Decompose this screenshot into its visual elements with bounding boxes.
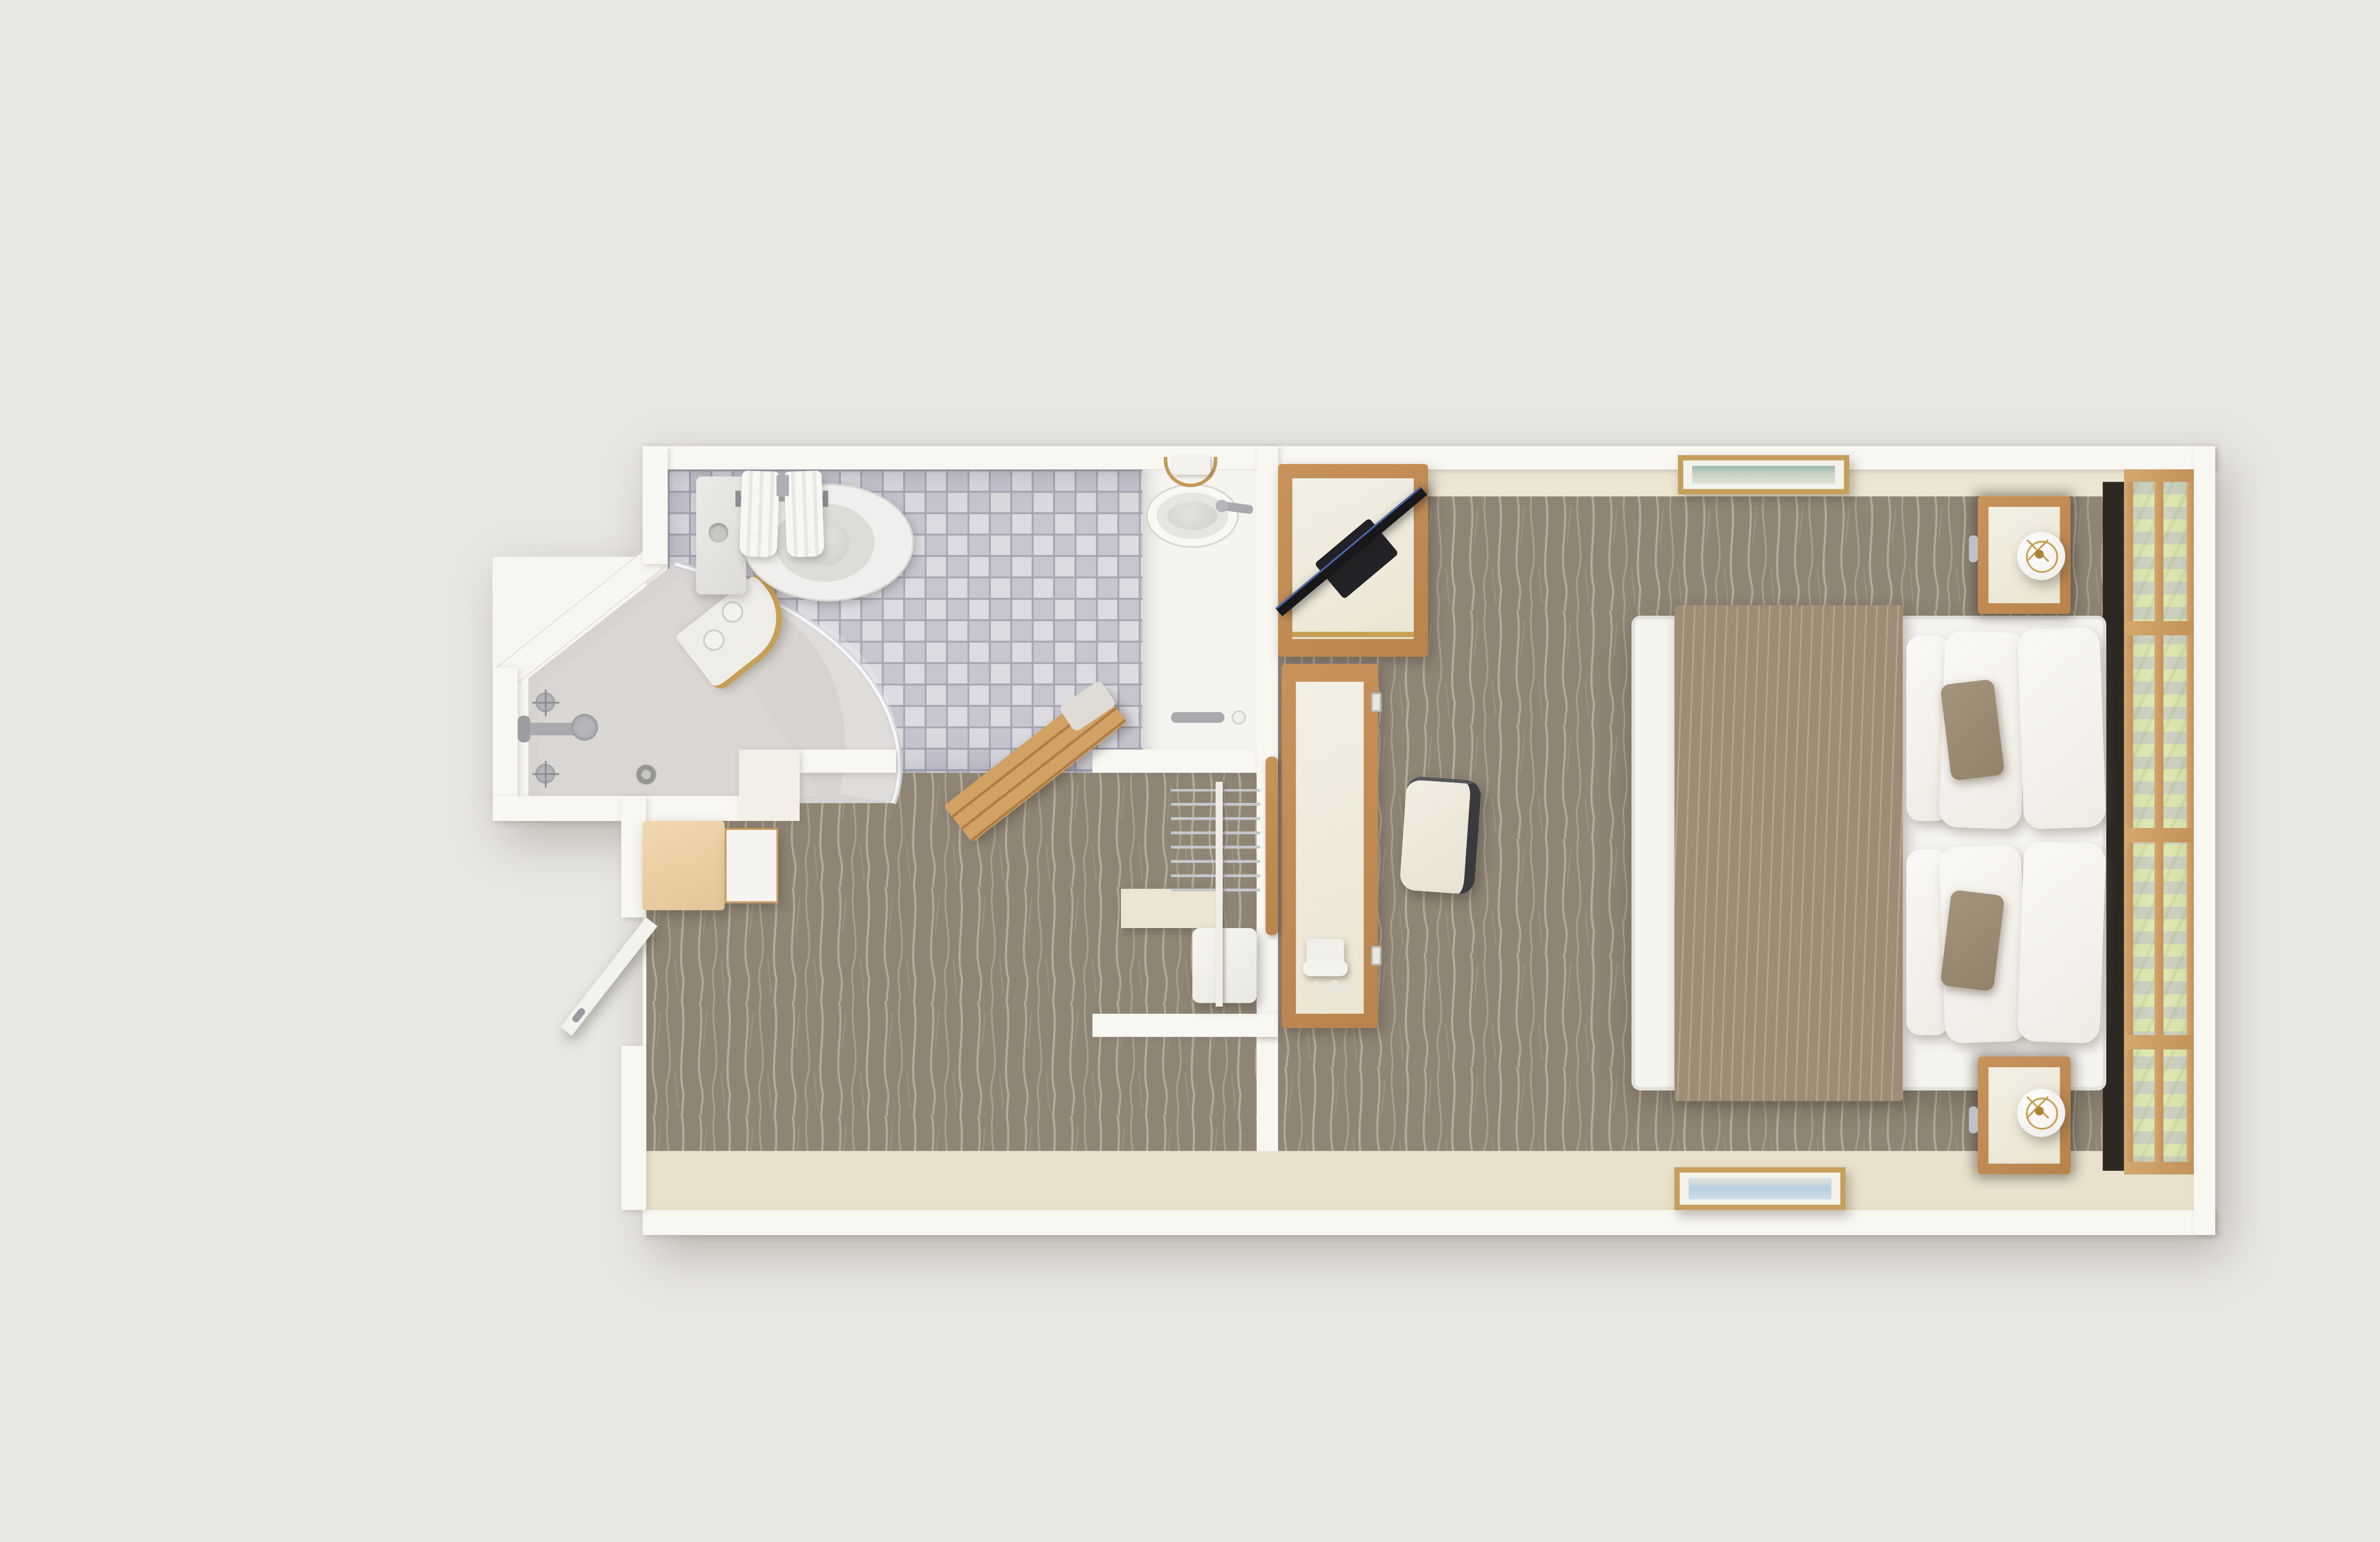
hall-cabinet-wood-top xyxy=(643,821,725,910)
sink-basin-bowl xyxy=(1168,502,1218,530)
hand-towel-on-ring xyxy=(1173,455,1210,474)
closet-rod xyxy=(1216,782,1223,1007)
table-lamp xyxy=(2017,532,2065,580)
wall-bathroom-south-west xyxy=(800,750,896,773)
shower-valve-cold xyxy=(535,764,555,783)
shower-spout-flange xyxy=(518,716,530,742)
wall-doorway-stub xyxy=(739,750,800,821)
wall-bumpout-left xyxy=(493,668,518,803)
desk-chair xyxy=(1399,776,1482,895)
bath-towel xyxy=(784,471,824,558)
wall-top xyxy=(643,446,2215,470)
light-switch xyxy=(1371,692,1382,712)
towel-bar-post xyxy=(823,491,828,507)
wall-bathroom-south-east xyxy=(1092,750,1278,773)
bed-runner xyxy=(1675,605,1903,1101)
window-frame-rail xyxy=(2124,469,2194,482)
table-lamp xyxy=(2017,1089,2065,1137)
towel-bar-post xyxy=(735,491,741,507)
closet-storage-cube xyxy=(1192,928,1257,1003)
nightstand-drawer-handle xyxy=(1969,1107,1978,1133)
artwork-top-canvas xyxy=(1692,466,1835,484)
nightstand-drawer-handle xyxy=(1969,535,1978,562)
sink-faucet-base xyxy=(1216,500,1228,512)
artwork-top-wall xyxy=(1678,455,1849,494)
toiletry-bottle xyxy=(699,625,729,655)
floor-plan-stage xyxy=(0,0,2380,1542)
light-switch xyxy=(1371,946,1382,966)
window-frame-stile xyxy=(2124,469,2133,1174)
shower-spout-knob xyxy=(571,714,598,741)
artwork-bottom-canvas xyxy=(1689,1178,1832,1199)
wall-left-upper xyxy=(643,446,668,564)
telephone-handset xyxy=(1303,960,1348,977)
window-frame-rail xyxy=(2124,828,2194,842)
shower-drain xyxy=(635,764,657,785)
shower-valve-hot xyxy=(535,692,555,712)
wall-interior-bath-bedroom xyxy=(1257,446,1278,1037)
hand-towel-clip xyxy=(776,475,789,496)
pillow-white xyxy=(2017,627,2106,830)
bath-towel xyxy=(739,471,780,558)
toilet-flush-button xyxy=(709,523,728,543)
window-frame-stile xyxy=(2154,469,2163,1174)
artwork-bottom-wall xyxy=(1675,1167,1846,1210)
counter-amenity-tray xyxy=(1171,712,1225,723)
wall-closet-south xyxy=(1092,1014,1278,1037)
wall-bottom xyxy=(643,1210,2215,1236)
telephone-cord xyxy=(1314,978,1349,999)
counter-amenity-cup xyxy=(1232,711,1246,725)
window-frame-rail xyxy=(2124,1162,2194,1174)
window-frame-rail xyxy=(2124,1035,2194,1049)
wall-bumpout-bottom xyxy=(493,796,746,821)
window-frame-rail xyxy=(2124,621,2194,635)
hall-cabinet-drawer xyxy=(725,828,779,903)
wall-left-below-door xyxy=(621,1046,646,1210)
window-frame-stile xyxy=(2187,469,2194,1174)
tv-cabinet-gold-trim xyxy=(1292,632,1414,637)
pillow-white xyxy=(2017,841,2106,1044)
wall-right xyxy=(2194,446,2215,1236)
wall-grab-bar xyxy=(1266,757,1278,935)
toiletry-bottle xyxy=(717,597,747,627)
